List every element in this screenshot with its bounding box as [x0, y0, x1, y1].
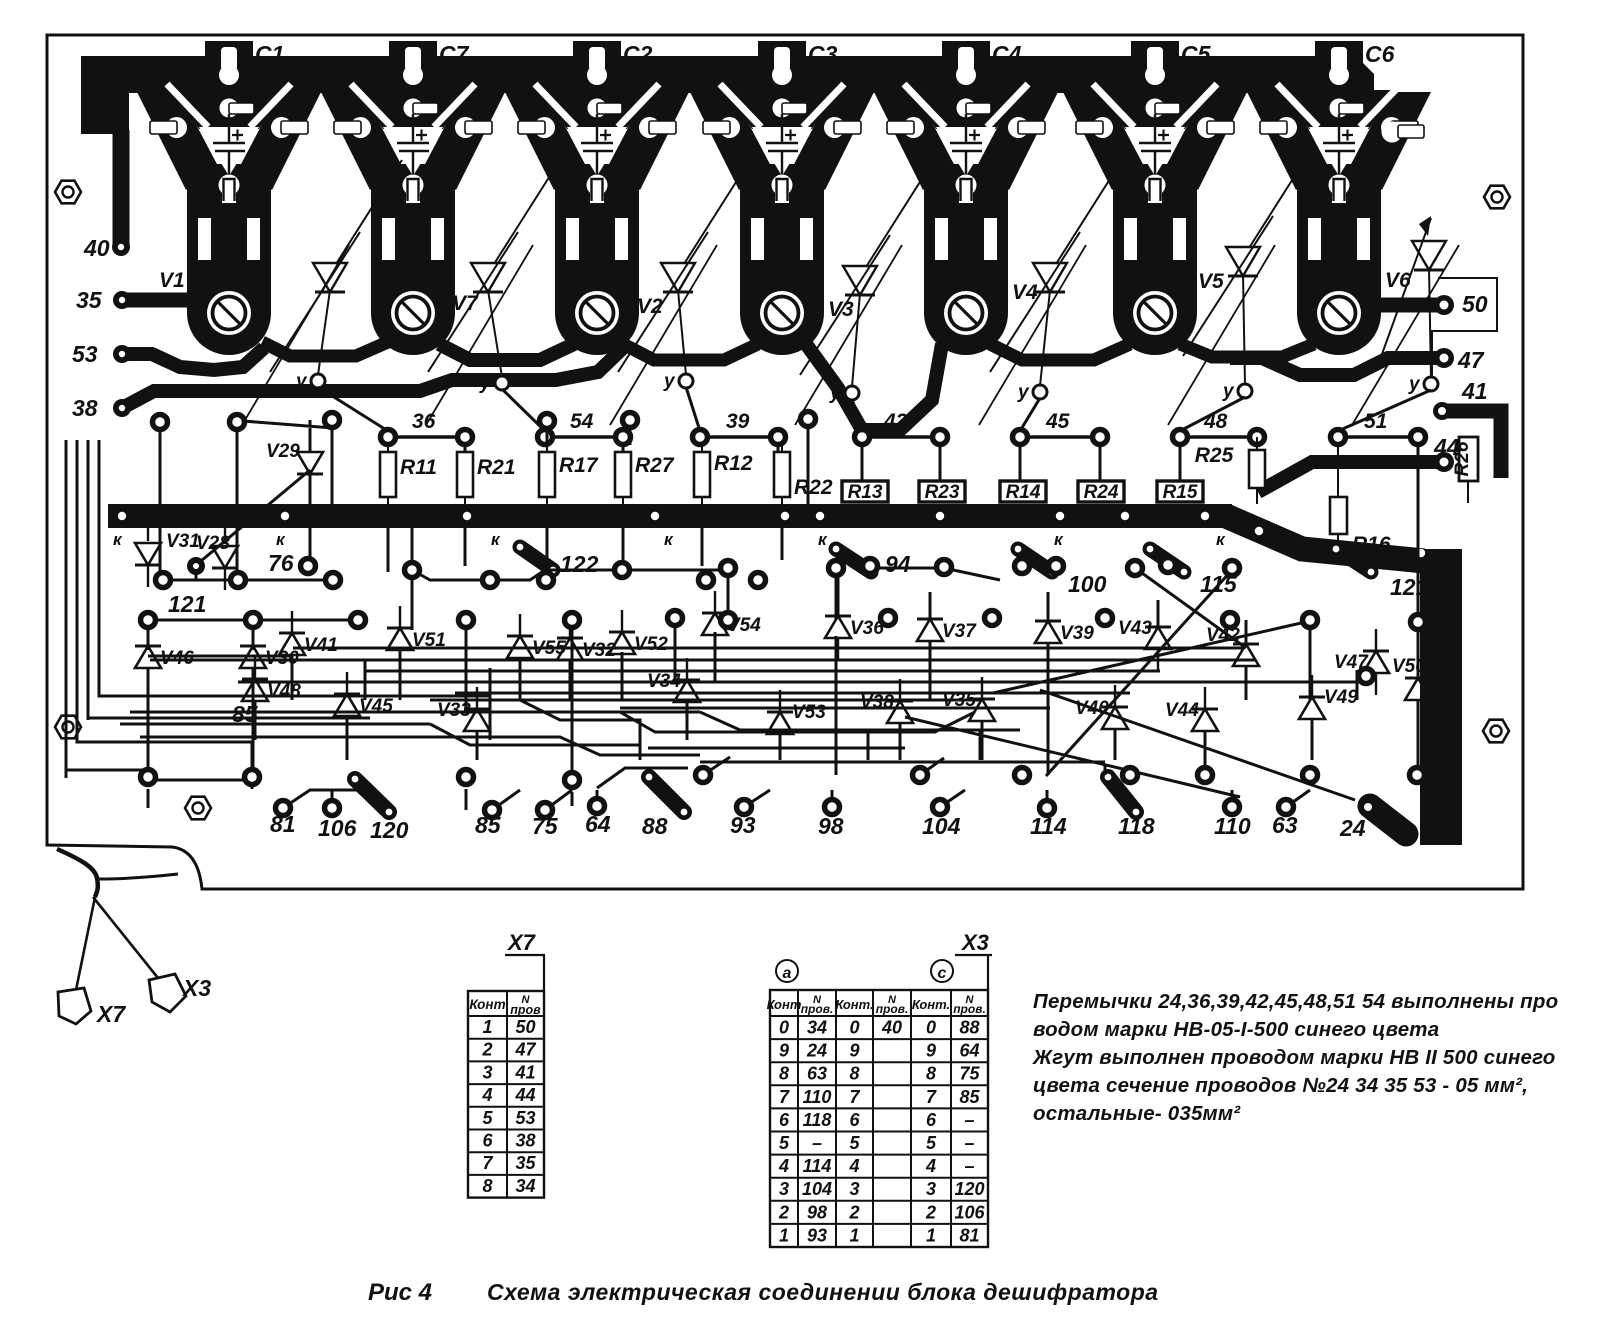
svg-text:V55: V55	[532, 638, 566, 659]
svg-text:C3: C3	[808, 41, 838, 67]
svg-text:34: 34	[515, 1176, 535, 1196]
svg-text:3: 3	[926, 1179, 936, 1199]
svg-text:118: 118	[803, 1110, 832, 1130]
svg-text:Конт.: Конт.	[912, 997, 950, 1012]
svg-text:2: 2	[481, 1040, 492, 1060]
svg-text:V35: V35	[942, 690, 976, 711]
svg-text:R12: R12	[714, 452, 753, 475]
svg-text:4: 4	[481, 1085, 492, 1105]
svg-text:4: 4	[848, 1156, 859, 1176]
svg-text:V34: V34	[647, 671, 681, 692]
svg-text:2: 2	[925, 1202, 936, 1222]
svg-text:у: у	[1222, 381, 1235, 402]
svg-text:Конт.: Конт.	[835, 997, 873, 1012]
svg-text:R14: R14	[1006, 482, 1041, 503]
svg-text:R22: R22	[794, 476, 833, 499]
svg-text:X7: X7	[506, 930, 537, 955]
svg-text:пров.: пров.	[953, 1002, 986, 1016]
svg-text:85: 85	[232, 701, 259, 727]
svg-text:Конт: Конт	[767, 997, 802, 1012]
svg-text:75: 75	[959, 1064, 980, 1084]
svg-text:110: 110	[1214, 813, 1251, 839]
svg-text:6: 6	[849, 1110, 860, 1130]
svg-text:V40: V40	[1075, 698, 1109, 719]
svg-text:V37: V37	[942, 621, 977, 642]
svg-text:а: а	[783, 965, 792, 982]
svg-text:V44: V44	[1165, 700, 1199, 721]
svg-text:C1: C1	[255, 41, 284, 67]
svg-text:9: 9	[926, 1041, 936, 1061]
svg-text:8: 8	[482, 1176, 492, 1196]
svg-text:Схема электрическая соединен: Схема электрическая соединении блока деш…	[487, 1279, 1159, 1305]
svg-text:R27: R27	[635, 454, 675, 477]
svg-text:R16: R16	[1352, 533, 1391, 556]
svg-text:50: 50	[1462, 291, 1488, 317]
svg-text:40: 40	[881, 1018, 902, 1038]
svg-text:остальные- 035мм²: остальные- 035мм²	[1033, 1102, 1241, 1125]
svg-text:–: –	[964, 1133, 974, 1153]
svg-text:106: 106	[954, 1202, 985, 1222]
svg-text:X3: X3	[960, 930, 989, 955]
svg-text:54: 54	[570, 410, 594, 433]
svg-text:C7: C7	[439, 41, 470, 67]
svg-text:V31: V31	[166, 531, 200, 552]
svg-text:35: 35	[515, 1153, 536, 1173]
svg-text:7: 7	[482, 1153, 493, 1173]
svg-text:115: 115	[1200, 571, 1238, 597]
svg-text:–: –	[964, 1110, 974, 1130]
svg-text:7: 7	[926, 1087, 937, 1107]
svg-text:к: к	[818, 530, 828, 549]
svg-text:85: 85	[959, 1087, 980, 1107]
svg-text:V29: V29	[266, 441, 300, 462]
svg-text:C6: C6	[1365, 41, 1395, 67]
svg-text:0: 0	[849, 1018, 859, 1038]
svg-text:50: 50	[515, 1017, 535, 1037]
svg-text:V33: V33	[437, 700, 471, 721]
svg-text:8: 8	[926, 1064, 936, 1084]
svg-text:с: с	[938, 965, 947, 982]
svg-text:V1: V1	[159, 269, 185, 292]
svg-text:41: 41	[1461, 378, 1488, 404]
svg-text:V6: V6	[1385, 269, 1411, 292]
svg-text:V7: V7	[452, 292, 479, 315]
svg-text:75: 75	[532, 813, 559, 839]
svg-text:5: 5	[779, 1133, 790, 1153]
svg-text:к: к	[113, 530, 123, 549]
svg-text:2: 2	[848, 1202, 859, 1222]
svg-text:98: 98	[818, 813, 844, 839]
svg-text:X3: X3	[181, 975, 211, 1001]
svg-text:40: 40	[83, 235, 110, 261]
svg-text:39: 39	[726, 410, 750, 433]
svg-text:7: 7	[849, 1087, 860, 1107]
svg-text:122: 122	[560, 551, 599, 577]
svg-text:V46: V46	[160, 648, 194, 669]
svg-text:53: 53	[72, 341, 98, 367]
svg-text:5: 5	[926, 1133, 937, 1153]
svg-text:у: у	[1408, 374, 1421, 395]
svg-text:R11: R11	[400, 456, 437, 479]
svg-text:к: к	[1216, 530, 1226, 549]
svg-text:5: 5	[849, 1133, 860, 1153]
svg-text:64: 64	[585, 811, 611, 837]
svg-text:120: 120	[954, 1179, 984, 1199]
svg-text:94: 94	[885, 551, 911, 577]
svg-text:6: 6	[779, 1110, 790, 1130]
svg-text:у: у	[663, 371, 676, 392]
svg-text:85: 85	[475, 812, 502, 838]
svg-text:88: 88	[959, 1018, 979, 1038]
svg-text:104: 104	[802, 1179, 832, 1199]
svg-text:V49: V49	[1324, 687, 1358, 708]
svg-text:к: к	[1054, 530, 1064, 549]
svg-text:5: 5	[482, 1108, 493, 1128]
svg-text:106: 106	[318, 815, 357, 841]
svg-text:V45: V45	[359, 696, 393, 717]
svg-text:118: 118	[1118, 813, 1155, 839]
svg-text:0: 0	[926, 1018, 936, 1038]
svg-text:121: 121	[1390, 574, 1428, 600]
svg-text:76: 76	[268, 550, 294, 576]
svg-text:у: у	[479, 373, 492, 394]
svg-text:8: 8	[849, 1064, 859, 1084]
svg-text:R13: R13	[848, 482, 883, 503]
svg-text:V53: V53	[792, 702, 826, 723]
svg-text:V38: V38	[860, 692, 894, 713]
svg-text:R21: R21	[477, 456, 516, 479]
svg-text:R17: R17	[559, 454, 599, 477]
svg-text:цвета сечение проводов №2: цвета сечение проводов №24 34 35 53 - 05…	[1033, 1074, 1528, 1097]
svg-text:9: 9	[779, 1041, 789, 1061]
svg-text:Перемычки 24,36,39,42,45,48,5: Перемычки 24,36,39,42,45,48,51 54 выполн…	[1033, 990, 1558, 1013]
svg-text:44: 44	[514, 1085, 535, 1105]
svg-text:V51: V51	[412, 630, 446, 651]
svg-text:53: 53	[515, 1108, 535, 1128]
svg-text:–: –	[964, 1156, 974, 1176]
svg-text:2: 2	[778, 1202, 789, 1222]
svg-text:114: 114	[1030, 813, 1067, 839]
svg-text:V50: V50	[1392, 656, 1426, 677]
svg-text:110: 110	[803, 1087, 832, 1107]
svg-text:Рис 4: Рис 4	[368, 1279, 432, 1306]
svg-text:0: 0	[779, 1018, 789, 1038]
svg-text:6: 6	[482, 1131, 493, 1151]
svg-text:–: –	[812, 1133, 822, 1153]
svg-text:42: 42	[883, 410, 908, 433]
svg-text:64: 64	[959, 1041, 979, 1061]
svg-text:4: 4	[778, 1156, 789, 1176]
svg-text:1: 1	[482, 1017, 492, 1037]
svg-text:водом марки НВ-05-I-500 с: водом марки НВ-05-I-500 синего цвета	[1033, 1018, 1439, 1041]
svg-text:38: 38	[515, 1131, 535, 1151]
svg-text:C4: C4	[992, 41, 1022, 67]
svg-text:пров.: пров.	[801, 1002, 834, 1016]
svg-text:1: 1	[926, 1225, 936, 1245]
svg-text:V39: V39	[1060, 623, 1094, 644]
svg-text:R24: R24	[1084, 482, 1119, 503]
svg-text:V5: V5	[1198, 270, 1224, 293]
svg-text:114: 114	[803, 1156, 832, 1176]
svg-text:93: 93	[730, 812, 756, 838]
svg-text:9: 9	[849, 1041, 859, 1061]
svg-text:98: 98	[807, 1202, 827, 1222]
svg-text:V43: V43	[1118, 618, 1152, 639]
svg-text:34: 34	[807, 1018, 827, 1038]
svg-text:120: 120	[370, 817, 409, 843]
svg-text:V41: V41	[304, 635, 338, 656]
svg-text:38: 38	[72, 395, 98, 421]
svg-text:4: 4	[925, 1156, 936, 1176]
svg-text:R26: R26	[1452, 441, 1473, 476]
svg-text:100: 100	[1068, 571, 1107, 597]
svg-text:R25: R25	[1195, 444, 1234, 467]
svg-text:к: к	[491, 530, 501, 549]
svg-text:3: 3	[849, 1179, 859, 1199]
svg-text:45: 45	[1045, 410, 1070, 433]
svg-text:к: к	[664, 530, 674, 549]
svg-text:88: 88	[642, 813, 668, 839]
svg-text:63: 63	[807, 1064, 827, 1084]
svg-text:X7: X7	[95, 1001, 126, 1027]
svg-text:V52: V52	[634, 634, 668, 655]
svg-text:у: у	[829, 383, 842, 404]
svg-text:47: 47	[514, 1040, 536, 1060]
svg-text:к: к	[276, 530, 286, 549]
svg-text:41: 41	[514, 1062, 535, 1082]
svg-text:24: 24	[1339, 815, 1366, 841]
svg-text:R15: R15	[1163, 482, 1198, 503]
svg-text:121: 121	[168, 591, 206, 617]
svg-text:63: 63	[1272, 812, 1298, 838]
svg-text:V4: V4	[1012, 281, 1038, 304]
svg-text:93: 93	[807, 1225, 827, 1245]
svg-text:104: 104	[922, 813, 961, 839]
svg-text:C5: C5	[1181, 41, 1212, 67]
svg-text:C2: C2	[623, 41, 653, 67]
svg-text:R23: R23	[925, 482, 960, 503]
svg-text:81: 81	[959, 1225, 979, 1245]
svg-text:24: 24	[806, 1041, 827, 1061]
svg-text:7: 7	[779, 1087, 790, 1107]
svg-text:Конт: Конт	[469, 997, 505, 1012]
svg-text:35: 35	[76, 287, 103, 313]
svg-text:3: 3	[482, 1062, 492, 1082]
svg-text:47: 47	[1457, 347, 1485, 373]
svg-text:пров: пров	[510, 1003, 541, 1017]
svg-text:у: у	[1017, 382, 1030, 403]
svg-text:пров.: пров.	[876, 1002, 909, 1016]
svg-text:81: 81	[270, 811, 296, 837]
svg-text:3: 3	[779, 1179, 789, 1199]
svg-text:у: у	[295, 371, 308, 392]
svg-text:1: 1	[849, 1225, 859, 1245]
svg-text:1: 1	[779, 1225, 789, 1245]
svg-text:8: 8	[779, 1064, 789, 1084]
svg-text:V48: V48	[267, 681, 301, 702]
svg-text:Жгут выполнен проводом марк: Жгут выполнен проводом марки НВ II 500 с…	[1032, 1046, 1555, 1069]
svg-text:6: 6	[926, 1110, 937, 1130]
